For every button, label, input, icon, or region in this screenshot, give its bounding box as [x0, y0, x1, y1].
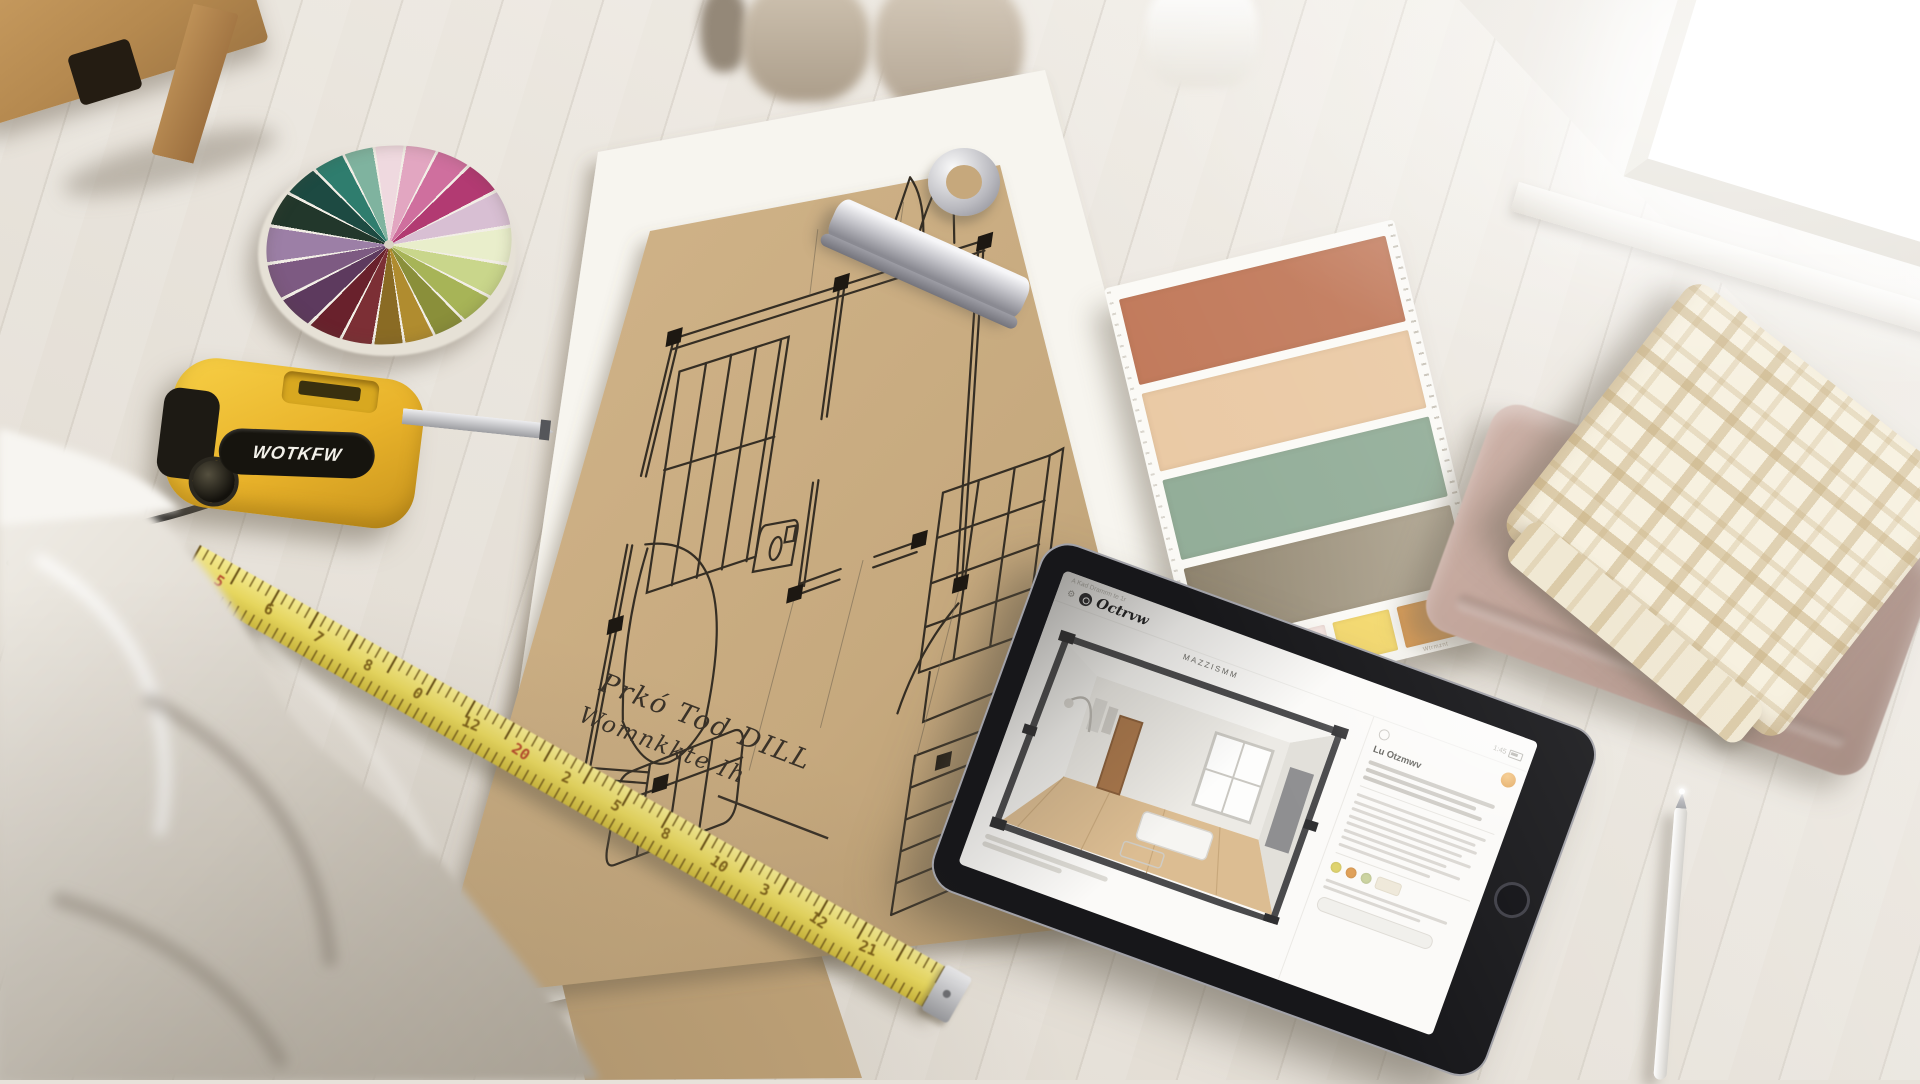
material-chip[interactable] — [1374, 875, 1403, 896]
app-logo-icon — [1077, 591, 1094, 608]
home-button-icon[interactable] — [1489, 877, 1535, 923]
ruler-number: 12 — [459, 712, 483, 736]
clipboard-clip-hole — [946, 165, 982, 199]
status-cluster: 1:45 — [1492, 744, 1524, 762]
ruler-number: 10 — [707, 852, 732, 877]
ruler-number: 8 — [360, 655, 375, 675]
ruler-number: 5 — [607, 796, 625, 816]
ruler-number: 3 — [757, 880, 772, 900]
ruler-number: 8 — [658, 824, 673, 844]
tape-measure-label: WOTKFW — [218, 428, 376, 479]
ruler-number: 6 — [261, 599, 276, 619]
gear-icon[interactable]: ⚙ — [1066, 587, 1077, 600]
tape-measure-slot — [281, 370, 380, 413]
ruler-number: 12 — [806, 908, 831, 933]
ruler-number: 2 — [559, 768, 574, 788]
ruler-number: 5 — [210, 571, 228, 591]
color-chip[interactable] — [1359, 871, 1373, 885]
clock-label: 1:45 — [1492, 744, 1507, 755]
tape-measure: WOTKFW — [160, 353, 428, 533]
color-chip[interactable] — [1344, 865, 1358, 879]
avatar[interactable] — [1499, 770, 1518, 789]
ruler-number: 20 — [508, 739, 533, 764]
ruler-number: 21 — [856, 936, 880, 960]
color-chip[interactable] — [1329, 860, 1343, 874]
battery-icon — [1508, 749, 1524, 761]
ruler-number: 7 — [310, 627, 328, 647]
tape-measure-cord — [10, 503, 212, 563]
search-icon[interactable] — [1377, 728, 1391, 742]
ruler-number: 0 — [409, 683, 427, 703]
tape-measure-brand: WOTKFW — [250, 441, 343, 465]
tape-measure-hook — [539, 420, 551, 441]
